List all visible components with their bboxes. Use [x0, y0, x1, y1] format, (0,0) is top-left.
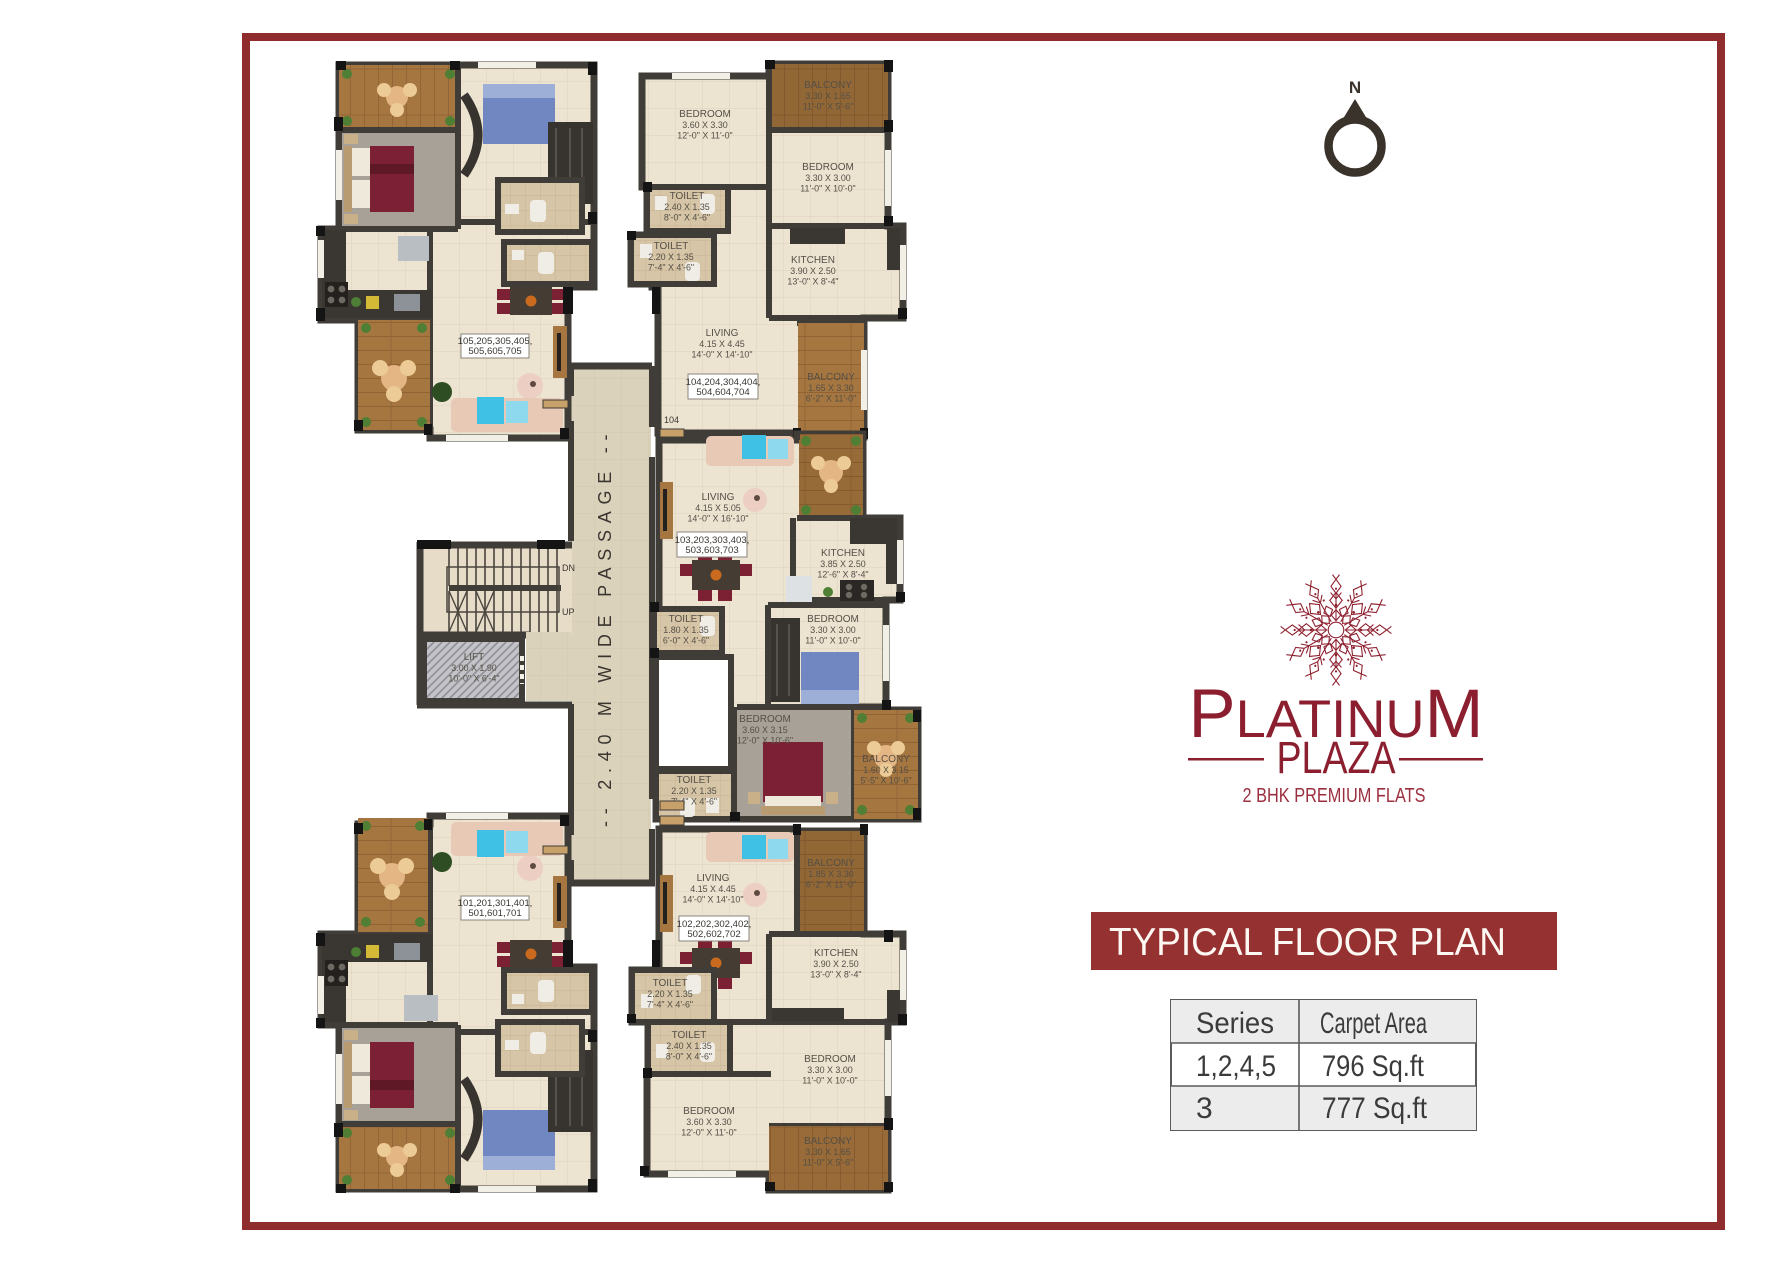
svg-text:796 Sq.ft: 796 Sq.ft [1322, 1050, 1425, 1083]
svg-text:KITCHEN3.90 X 2.5013'-0" X 8'-: KITCHEN3.90 X 2.5013'-0" X 8'-4" [810, 948, 861, 980]
svg-text:-- 2.40 M WIDE PASSAGE --: -- 2.40 M WIDE PASSAGE -- [595, 429, 615, 827]
svg-text:TOILET2.20 X 1.357'-4" X 4'-6": TOILET2.20 X 1.357'-4" X 4'-6" [647, 978, 693, 1010]
svg-text:2 BHK PREMIUM FLATS: 2 BHK PREMIUM FLATS [1243, 785, 1426, 807]
svg-text:BEDROOM3.60 X 3.3012'-0" X 11': BEDROOM3.60 X 3.3012'-0" X 11'-0" [677, 109, 732, 141]
svg-text:N: N [1349, 78, 1361, 97]
svg-text:Carpet Area: Carpet Area [1320, 1007, 1427, 1040]
svg-text:TOILET1.80 X 1.356'-0" X 4'-6": TOILET1.80 X 1.356'-0" X 4'-6" [663, 614, 709, 646]
svg-text:Series: Series [1196, 1007, 1274, 1040]
svg-text:BALCONY1.65 X 3.306'-2" X 11'-: BALCONY1.65 X 3.306'-2" X 11'-0" [806, 372, 856, 404]
svg-text:504,604,704: 504,604,704 [696, 387, 750, 398]
svg-text:KITCHEN3.85 X 2.5012'-6" X 8'-: KITCHEN3.85 X 2.5012'-6" X 8'-4" [817, 548, 868, 580]
svg-text:BEDROOM3.30 X 3.0011'-0" X 10': BEDROOM3.30 X 3.0011'-0" X 10'-0" [800, 162, 855, 194]
svg-text:502,602,702: 502,602,702 [687, 929, 740, 940]
svg-text:777 Sq.ft: 777 Sq.ft [1322, 1092, 1428, 1125]
svg-text:BEDROOM3.60 X 3.1512'-0" X 10': BEDROOM3.60 X 3.1512'-0" X 10'-6" [737, 714, 793, 746]
svg-text:505,605,705: 505,605,705 [468, 346, 521, 357]
svg-text:TYPICAL FLOOR PLAN: TYPICAL FLOOR PLAN [1109, 921, 1506, 964]
svg-text:PLAZA: PLAZA [1277, 732, 1396, 783]
svg-text:BEDROOM3.30 X 3.0011'-0" X 10': BEDROOM3.30 X 3.0011'-0" X 10'-0" [805, 614, 860, 646]
svg-text:TOILET2.20 X 1.357'-4" X 4'-6": TOILET2.20 X 1.357'-4" X 4'-6" [648, 241, 694, 273]
svg-text:BALCONY3.30 X 1.6511'-0" X 5'-: BALCONY3.30 X 1.6511'-0" X 5'-6" [803, 80, 853, 112]
svg-text:BEDROOM3.30 X 3.0011'-0" X 10': BEDROOM3.30 X 3.0011'-0" X 10'-0" [802, 1054, 857, 1086]
svg-text:BEDROOM3.60 X 3.3012'-0" X 11': BEDROOM3.60 X 3.3012'-0" X 11'-0" [681, 1106, 736, 1138]
svg-text:1,2,4,5: 1,2,4,5 [1196, 1050, 1276, 1083]
svg-text:503,603,703: 503,603,703 [685, 545, 738, 556]
svg-text:DN: DN [562, 563, 575, 573]
svg-text:TOILET2.40 X 1.358'-0" X 4'-6": TOILET2.40 X 1.358'-0" X 4'-6" [666, 1030, 712, 1062]
svg-text:BALCONY1.85 X 3.306'-2" X 11'-: BALCONY1.85 X 3.306'-2" X 11'-0" [806, 858, 856, 890]
svg-text:501,601,701: 501,601,701 [468, 908, 521, 919]
svg-text:BALCONY3.30 X 1.6511'-0" X 5'-: BALCONY3.30 X 1.6511'-0" X 5'-6" [803, 1136, 853, 1168]
svg-text:UP: UP [562, 607, 575, 617]
svg-text:104: 104 [664, 415, 679, 425]
svg-text:KITCHEN3.90 X 2.5013'-0" X 8'-: KITCHEN3.90 X 2.5013'-0" X 8'-4" [787, 255, 838, 287]
svg-text:TOILET2.40 X 1.358'-0" X 4'-6": TOILET2.40 X 1.358'-0" X 4'-6" [664, 191, 710, 223]
svg-text:BALCONY1.60 X 3.155'-5" X 10'-: BALCONY1.60 X 3.155'-5" X 10'-6" [860, 754, 911, 786]
svg-text:3: 3 [1196, 1092, 1213, 1125]
